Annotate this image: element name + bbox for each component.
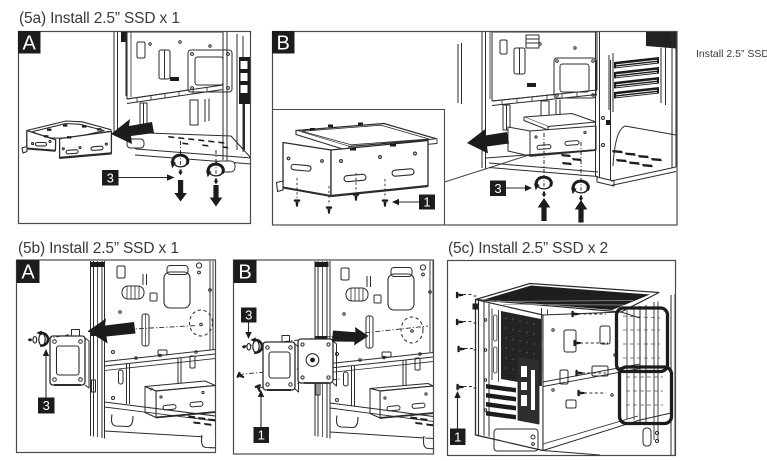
svg-text:1: 1 xyxy=(258,428,265,443)
svg-text:A: A xyxy=(21,262,35,284)
svg-text:3: 3 xyxy=(494,181,501,196)
svg-text:Install 2.5” SSD: Install 2.5” SSD xyxy=(696,48,767,60)
svg-text:(5a) Install 2.5” SSD x 1: (5a) Install 2.5” SSD x 1 xyxy=(19,10,180,27)
svg-text:3: 3 xyxy=(245,308,252,323)
svg-text:A: A xyxy=(23,33,37,55)
svg-text:B: B xyxy=(277,33,290,55)
svg-text:3: 3 xyxy=(43,398,50,413)
svg-text:(5b) Install 2.5” SSD x 1: (5b) Install 2.5” SSD x 1 xyxy=(18,240,179,257)
svg-text:3: 3 xyxy=(107,171,114,186)
svg-text:(5c) Install 2.5” SSD x 2: (5c) Install 2.5” SSD x 2 xyxy=(448,240,608,257)
svg-text:B: B xyxy=(238,262,251,284)
svg-text:1: 1 xyxy=(454,430,461,445)
svg-text:1: 1 xyxy=(423,195,430,210)
